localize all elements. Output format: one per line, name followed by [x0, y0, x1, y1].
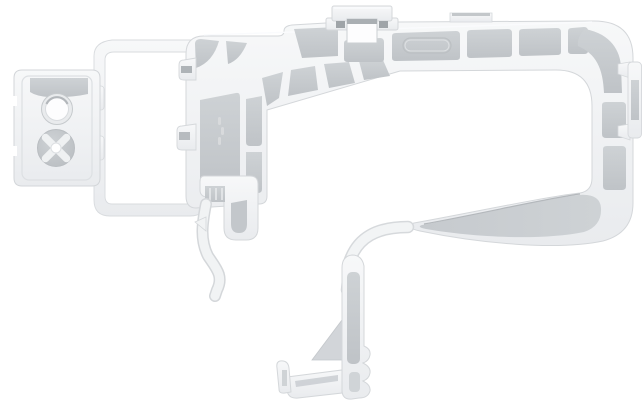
product-photo: [0, 0, 644, 410]
leg-lower-recess: [349, 372, 360, 392]
plate-notch-top: [12, 96, 17, 106]
hook-slot: [282, 370, 287, 386]
leg-recess-panel: [347, 272, 360, 364]
tab-notch-right: [379, 21, 388, 28]
top-flat-tab: [450, 13, 492, 22]
mounting-hole: [42, 94, 73, 125]
cross-boss: [38, 130, 75, 167]
tab-notch-left: [336, 21, 345, 28]
bracket-illustration: [0, 0, 644, 410]
left-fastener-plate: [12, 70, 104, 186]
jhook-recess: [231, 200, 247, 233]
plate-notch-bottom: [12, 146, 17, 156]
tab-window-shadow: [347, 19, 377, 24]
clip-recess: [631, 80, 639, 120]
